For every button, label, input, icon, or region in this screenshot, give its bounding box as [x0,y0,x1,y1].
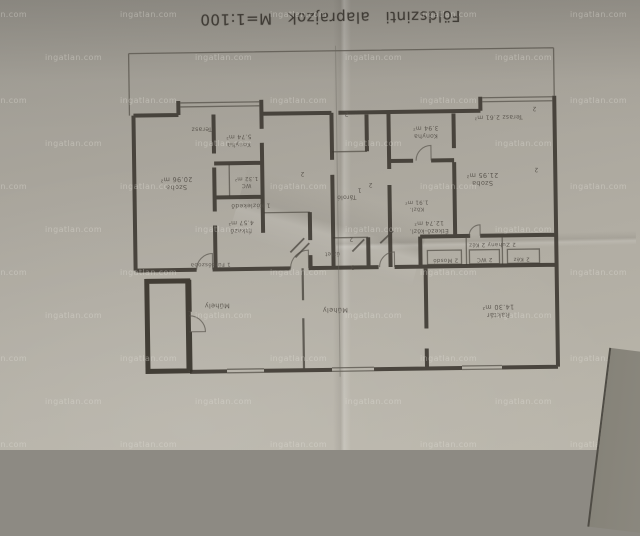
room-label: Szoba 20.96 m² [160,174,192,191]
room-label: Tároló [337,193,357,201]
room-label: Terasz 2.61 m² [474,112,522,120]
room-label: 2 WC [477,255,493,262]
room-label: Étkező 4.57 m² [228,218,254,234]
room-label: 2 Kéz [513,255,529,262]
room-label: üzlet [325,249,340,256]
room-label: Szoba 21.95 m² [466,170,498,187]
room-label: Konyha 3.94 m² [413,124,439,140]
room-number: 2 [300,169,304,177]
room-label: Terasz [191,125,212,133]
room-label: Raktár 14.30 m² [482,302,514,319]
room-number: 2 [349,235,353,243]
room-number: 3 [350,263,354,271]
room-number: 2 [532,104,536,112]
room-label: Közl. 1.91 m² [405,197,429,212]
room-number: 1 [357,186,361,194]
room-label: Étkező-közl. 12.74 m² [409,218,449,234]
floorplan-drawing [0,0,640,454]
room-label: Műhely [322,305,347,314]
room-label: 1 Közlekedő [231,201,270,209]
room-label: 1 Fürdőszoba [190,260,230,268]
room-label: Műhely [204,301,229,310]
room-label: WC 1.32 m² [234,174,258,189]
room-number: 2 [344,110,348,118]
room-label: 2 Zuhany 2 Kéz [469,240,516,248]
room-number: 2 [368,180,372,188]
floorplan: Földszinti alaprajzok M=1:100 TeraszKony… [0,0,640,454]
room-label: Konyha 5.74 m² [226,132,252,148]
room-number: 2 [534,165,538,173]
room-label: 2 Mosdó [433,256,458,263]
